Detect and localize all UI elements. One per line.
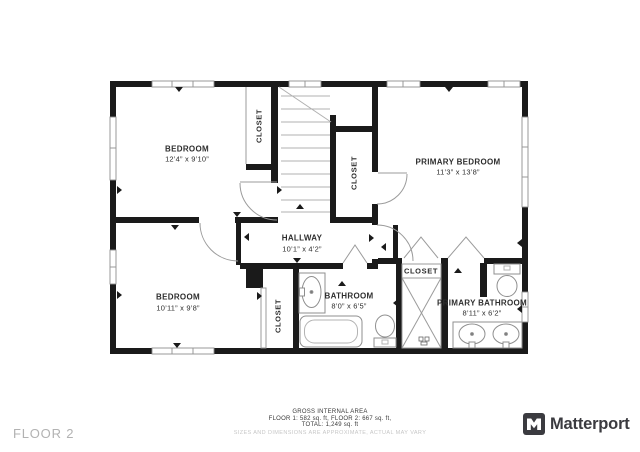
bathroom-dims: 8’0” x 6’5” [331,302,366,311]
faucet-left [469,342,475,348]
drain [310,291,313,294]
window [289,81,321,87]
hall-closet-label: CLOSET [350,156,359,190]
bedroom2-dims: 10’11” x 9’8” [156,304,199,313]
floor-areas: FLOOR 1: 582 sq. ft, FLOOR 2: 667 sq. ft… [234,416,427,423]
window [488,81,520,87]
hallway-label: HALLWAY [282,234,322,243]
toilet-flush [504,266,510,270]
window [152,348,214,354]
drain-left [471,333,474,336]
stairs-up-arrow [296,204,304,209]
bedroom1-closet-label: CLOSET [255,109,264,143]
toilet-flush [382,340,388,344]
bathtub-inner [305,320,358,343]
matterport-wordmark: Matterport [550,415,630,434]
primary-bedroom-dims: 11’3” x 13’8” [436,168,479,177]
laundry-bifold-door [404,237,438,258]
primary-bedroom-label: PRIMARY BEDROOM [416,158,501,167]
primary-bathroom-dims: 8’11” x 6’2” [463,309,502,318]
window [110,250,116,284]
floorplan-drawing [0,0,640,452]
bedroom2-closet-label: CLOSET [274,299,283,333]
laundry-closet-box [402,264,441,348]
bathroom-label: BATHROOM [325,292,374,301]
faucet [300,288,305,296]
primary-bathroom-bifold-door [448,237,484,258]
appliance-icon [425,337,429,341]
bedroom1-label: BEDROOM [165,145,209,154]
bedroom2-label: BEDROOM [156,293,200,302]
bedroom1-door-arc [240,183,277,220]
bedroom1-dims: 12’4” x 9’10” [165,155,209,164]
hallway-dims: 10’1” x 4’2” [282,245,322,254]
hall-closet-door-arc [377,174,407,204]
gross-area-title: GROSS INTERNAL AREA [234,409,427,416]
appliance-icon [419,337,423,341]
bifold-doors [343,237,484,263]
area-summary: GROSS INTERNAL AREA FLOOR 1: 582 sq. ft,… [234,409,427,436]
drain-right [505,333,508,336]
bathroom-bifold-door [343,245,367,263]
toilet-bowl [376,315,395,337]
floorplan-page: BEDROOM 12’4” x 9’10” PRIMARY BEDROOM 11… [0,0,640,452]
appliance-icon [421,342,427,345]
window [110,117,116,180]
window [522,117,528,207]
laundry-closet-label: CLOSET [404,267,438,276]
total-area: TOTAL: 1,249 sq. ft [234,422,427,429]
disclaimer: SIZES AND DIMENSIONS ARE APPROXIMATE, AC… [234,430,427,437]
toilet-bowl [497,276,517,297]
floor-label: FLOOR 2 [13,426,74,441]
stair-diagonal [279,87,331,122]
primary-bathroom-label: PRIMARY BATHROOM [437,299,527,308]
window [152,81,214,87]
matterport-logo: Matterport [523,413,630,435]
window [387,81,420,87]
matterport-logo-icon [523,413,545,435]
faucet-right [503,342,509,348]
stairs [279,87,331,212]
bedroom2-door-arc [200,223,238,261]
